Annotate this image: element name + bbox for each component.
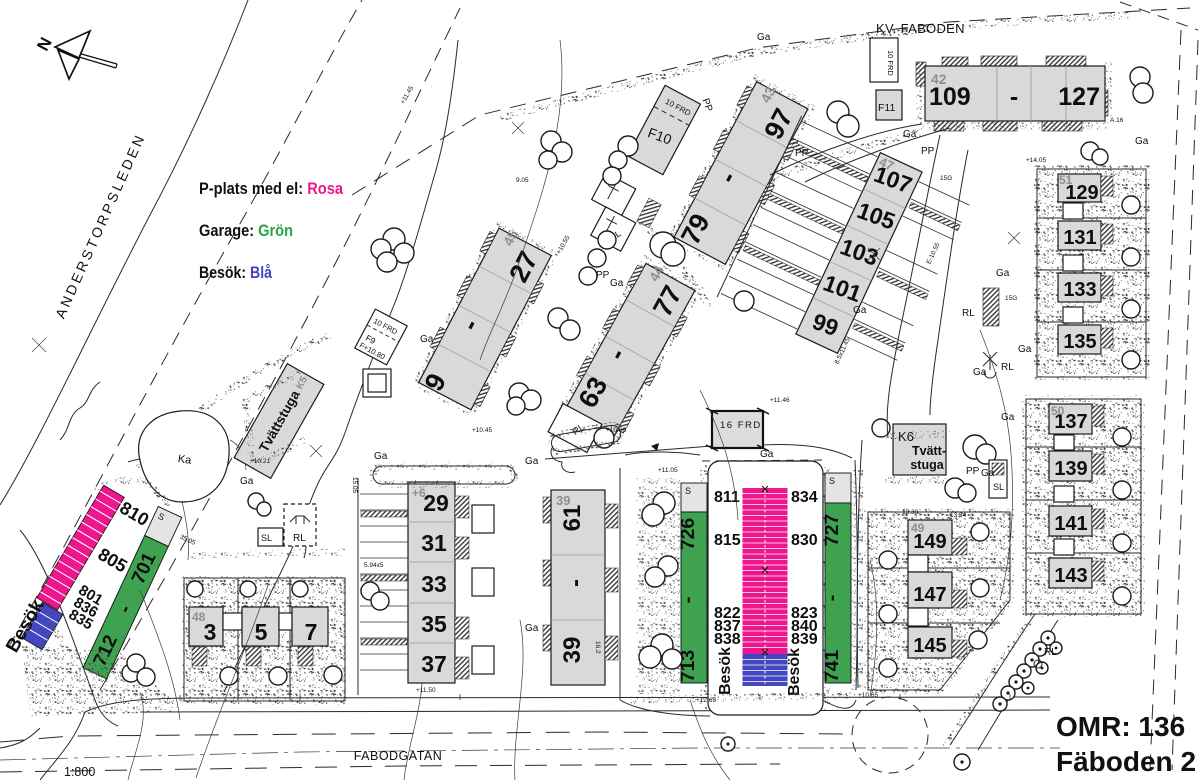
svg-text:S: S xyxy=(685,486,691,496)
svg-text:109: 109 xyxy=(929,83,971,111)
svg-text:49: 49 xyxy=(911,521,925,535)
svg-text:S: S xyxy=(829,476,835,486)
svg-text:834: 834 xyxy=(791,489,818,506)
svg-text:+14.05: +14.05 xyxy=(1026,157,1046,164)
svg-text:5: 5 xyxy=(255,619,268,645)
svg-text:Ga: Ga xyxy=(240,476,254,487)
svg-text:141: 141 xyxy=(1054,513,1087,535)
svg-text:+11.05: +11.05 xyxy=(658,467,678,474)
svg-text:741: 741 xyxy=(821,650,843,683)
svg-text:FABODGATAN: FABODGATAN xyxy=(354,749,443,763)
svg-text:39: 39 xyxy=(559,637,586,664)
svg-text:3: 3 xyxy=(204,619,217,645)
svg-text:31: 31 xyxy=(421,530,447,556)
svg-text:9.05: 9.05 xyxy=(516,177,529,184)
svg-text:13.30: 13.30 xyxy=(902,509,919,516)
svg-text:139: 139 xyxy=(1054,458,1087,480)
svg-text:Ga: Ga xyxy=(903,129,917,140)
svg-text:Ga: Ga xyxy=(853,305,867,316)
svg-text:PP: PP xyxy=(966,466,980,477)
svg-text:1:800: 1:800 xyxy=(64,765,95,779)
svg-text:Ga: Ga xyxy=(610,278,624,289)
svg-text:Ga: Ga xyxy=(1001,412,1015,423)
svg-text:147: 147 xyxy=(913,584,946,606)
svg-text:-: - xyxy=(821,595,843,602)
svg-text:OMR: 136: OMR: 136 xyxy=(1056,711,1185,742)
svg-text:51: 51 xyxy=(1059,173,1073,187)
svg-text:7: 7 xyxy=(305,619,318,645)
svg-text:Ga: Ga xyxy=(374,451,388,462)
svg-text:33: 33 xyxy=(421,571,447,597)
svg-text:-: - xyxy=(677,597,699,604)
svg-text:838: 838 xyxy=(714,631,741,648)
svg-text:+10.21: +10.21 xyxy=(250,458,270,465)
svg-text:Garage: Grön: Garage: Grön xyxy=(199,221,293,240)
svg-text:39: 39 xyxy=(556,493,570,508)
svg-text:42: 42 xyxy=(931,71,947,87)
svg-text:Ga: Ga xyxy=(525,456,539,467)
svg-text:830: 830 xyxy=(791,532,818,549)
svg-text:Ga: Ga xyxy=(973,367,987,378)
svg-text:15.05: 15.05 xyxy=(351,477,358,494)
svg-text:+10.65: +10.65 xyxy=(858,692,878,699)
svg-text:726: 726 xyxy=(677,518,699,551)
svg-text:13.34: 13.34 xyxy=(950,512,967,519)
svg-text:727: 727 xyxy=(821,514,843,547)
svg-text:+12.65: +12.65 xyxy=(696,697,716,704)
svg-text:133: 133 xyxy=(1063,279,1096,301)
svg-text:16.2: 16.2 xyxy=(594,641,601,654)
svg-text:+6: +6 xyxy=(412,486,426,500)
svg-text:5.94x5: 5.94x5 xyxy=(364,562,384,569)
svg-text:15G: 15G xyxy=(1005,295,1017,302)
svg-text:RL: RL xyxy=(1044,647,1057,658)
svg-text:Ga: Ga xyxy=(525,623,539,634)
svg-text:839: 839 xyxy=(791,631,818,648)
svg-text:Ga: Ga xyxy=(981,468,995,479)
svg-text:PP: PP xyxy=(921,146,935,157)
svg-text:+10.45: +10.45 xyxy=(472,427,492,434)
svg-text:RL: RL xyxy=(962,308,975,319)
svg-text:F11: F11 xyxy=(878,102,895,114)
svg-text:A.16: A.16 xyxy=(1110,117,1124,124)
svg-text:16 FRD: 16 FRD xyxy=(720,420,762,431)
svg-text:Besök: Besök xyxy=(786,648,803,696)
svg-text:15G: 15G xyxy=(940,175,952,182)
svg-text:10 FRD: 10 FRD xyxy=(886,50,895,76)
svg-text:PP: PP xyxy=(795,148,809,159)
svg-text:stuga: stuga xyxy=(910,458,944,472)
svg-text:Ga: Ga xyxy=(757,32,771,43)
svg-text:37: 37 xyxy=(421,651,447,677)
svg-text:Ka: Ka xyxy=(177,453,193,467)
svg-text:Ga: Ga xyxy=(1135,136,1149,147)
svg-text:Ga: Ga xyxy=(996,268,1010,279)
svg-text:Ga: Ga xyxy=(760,449,774,460)
svg-text:+10.06: +10.06 xyxy=(606,427,626,434)
svg-text:Tvätt-: Tvätt- xyxy=(912,444,946,458)
svg-text:RL: RL xyxy=(1001,362,1014,373)
svg-text:+11.50: +11.50 xyxy=(416,687,436,694)
svg-text:+11.46: +11.46 xyxy=(770,397,790,404)
svg-text:29: 29 xyxy=(423,490,449,516)
svg-text:-: - xyxy=(1010,83,1018,111)
svg-text:48: 48 xyxy=(192,610,206,624)
svg-text:Ga: Ga xyxy=(1018,344,1032,355)
svg-text:Besök: Besök xyxy=(717,647,734,695)
svg-text:131: 131 xyxy=(1063,227,1096,249)
svg-text:Besök: Blå: Besök: Blå xyxy=(199,263,272,282)
svg-text:815: 815 xyxy=(714,532,741,549)
svg-text:-: - xyxy=(562,579,589,587)
svg-text:KV. FABODEN: KV. FABODEN xyxy=(876,21,965,36)
svg-text:35: 35 xyxy=(421,611,447,637)
svg-text:143: 143 xyxy=(1054,565,1087,587)
svg-text:SL: SL xyxy=(993,482,1004,492)
svg-text:Ga: Ga xyxy=(420,334,434,345)
svg-text:135: 135 xyxy=(1063,331,1096,353)
svg-text:RL: RL xyxy=(293,533,306,544)
svg-text:50: 50 xyxy=(1051,404,1065,418)
svg-text:PP: PP xyxy=(596,270,610,281)
svg-text:145: 145 xyxy=(913,635,946,657)
svg-text:SL: SL xyxy=(261,533,272,543)
svg-text:127: 127 xyxy=(1058,83,1100,111)
svg-text:61: 61 xyxy=(559,505,586,532)
svg-text:Fäboden 2: Fäboden 2 xyxy=(1056,746,1196,777)
svg-text:P-plats med el: Rosa: P-plats med el: Rosa xyxy=(199,179,343,198)
